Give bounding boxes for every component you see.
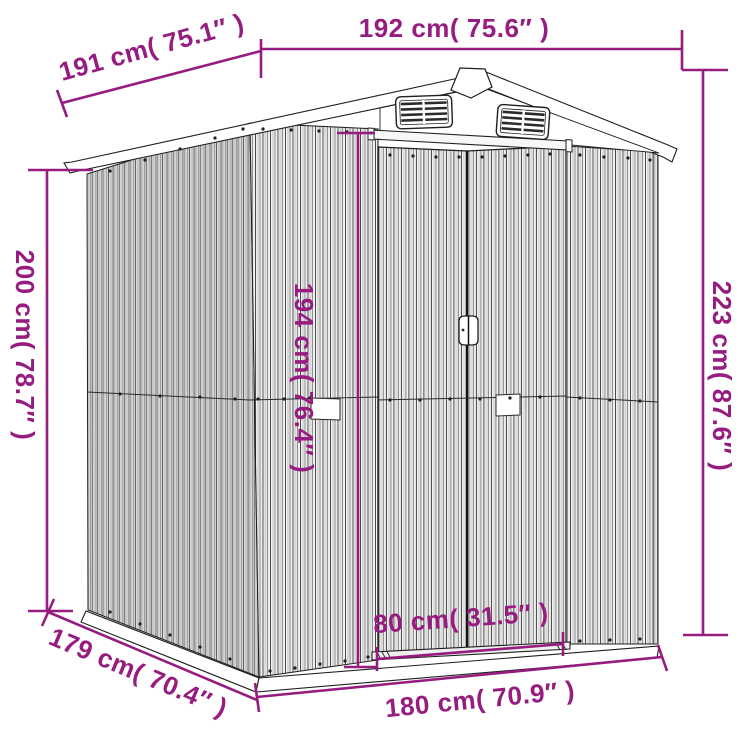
shed-illustration	[64, 68, 677, 692]
dim-label-door-height: 194 cm( 76.4″ )	[289, 283, 319, 474]
product-dimension-diagram: 192 cm( 75.6″ ) 191 cm( 75.1″ ) 200 cm( …	[0, 0, 740, 740]
gable-vent-left	[395, 95, 452, 129]
dim-roof-width-top: 192 cm( 75.6″ )	[261, 13, 728, 78]
dim-total-height-right: 223 cm( 87.6″ )	[683, 70, 737, 635]
dim-label-wall-height-left: 200 cm( 78.7″ )	[10, 250, 40, 441]
door-left	[378, 147, 467, 658]
side-wall-left	[87, 123, 259, 677]
dim-roof-depth-top: 191 cm( 75.1″ )	[56, 7, 261, 117]
gable-vent-right	[496, 104, 550, 140]
dim-label-total-height-right: 223 cm( 87.6″ )	[707, 281, 737, 472]
door-handle	[459, 316, 478, 345]
front-wall-right-panel	[566, 146, 658, 644]
dim-label-roof-width-top: 192 cm( 75.6″ )	[359, 13, 550, 43]
dim-label-roof-depth-top: 191 cm( 75.1″ )	[56, 7, 248, 87]
dim-wall-height-left: 200 cm( 78.7″ )	[10, 170, 93, 611]
